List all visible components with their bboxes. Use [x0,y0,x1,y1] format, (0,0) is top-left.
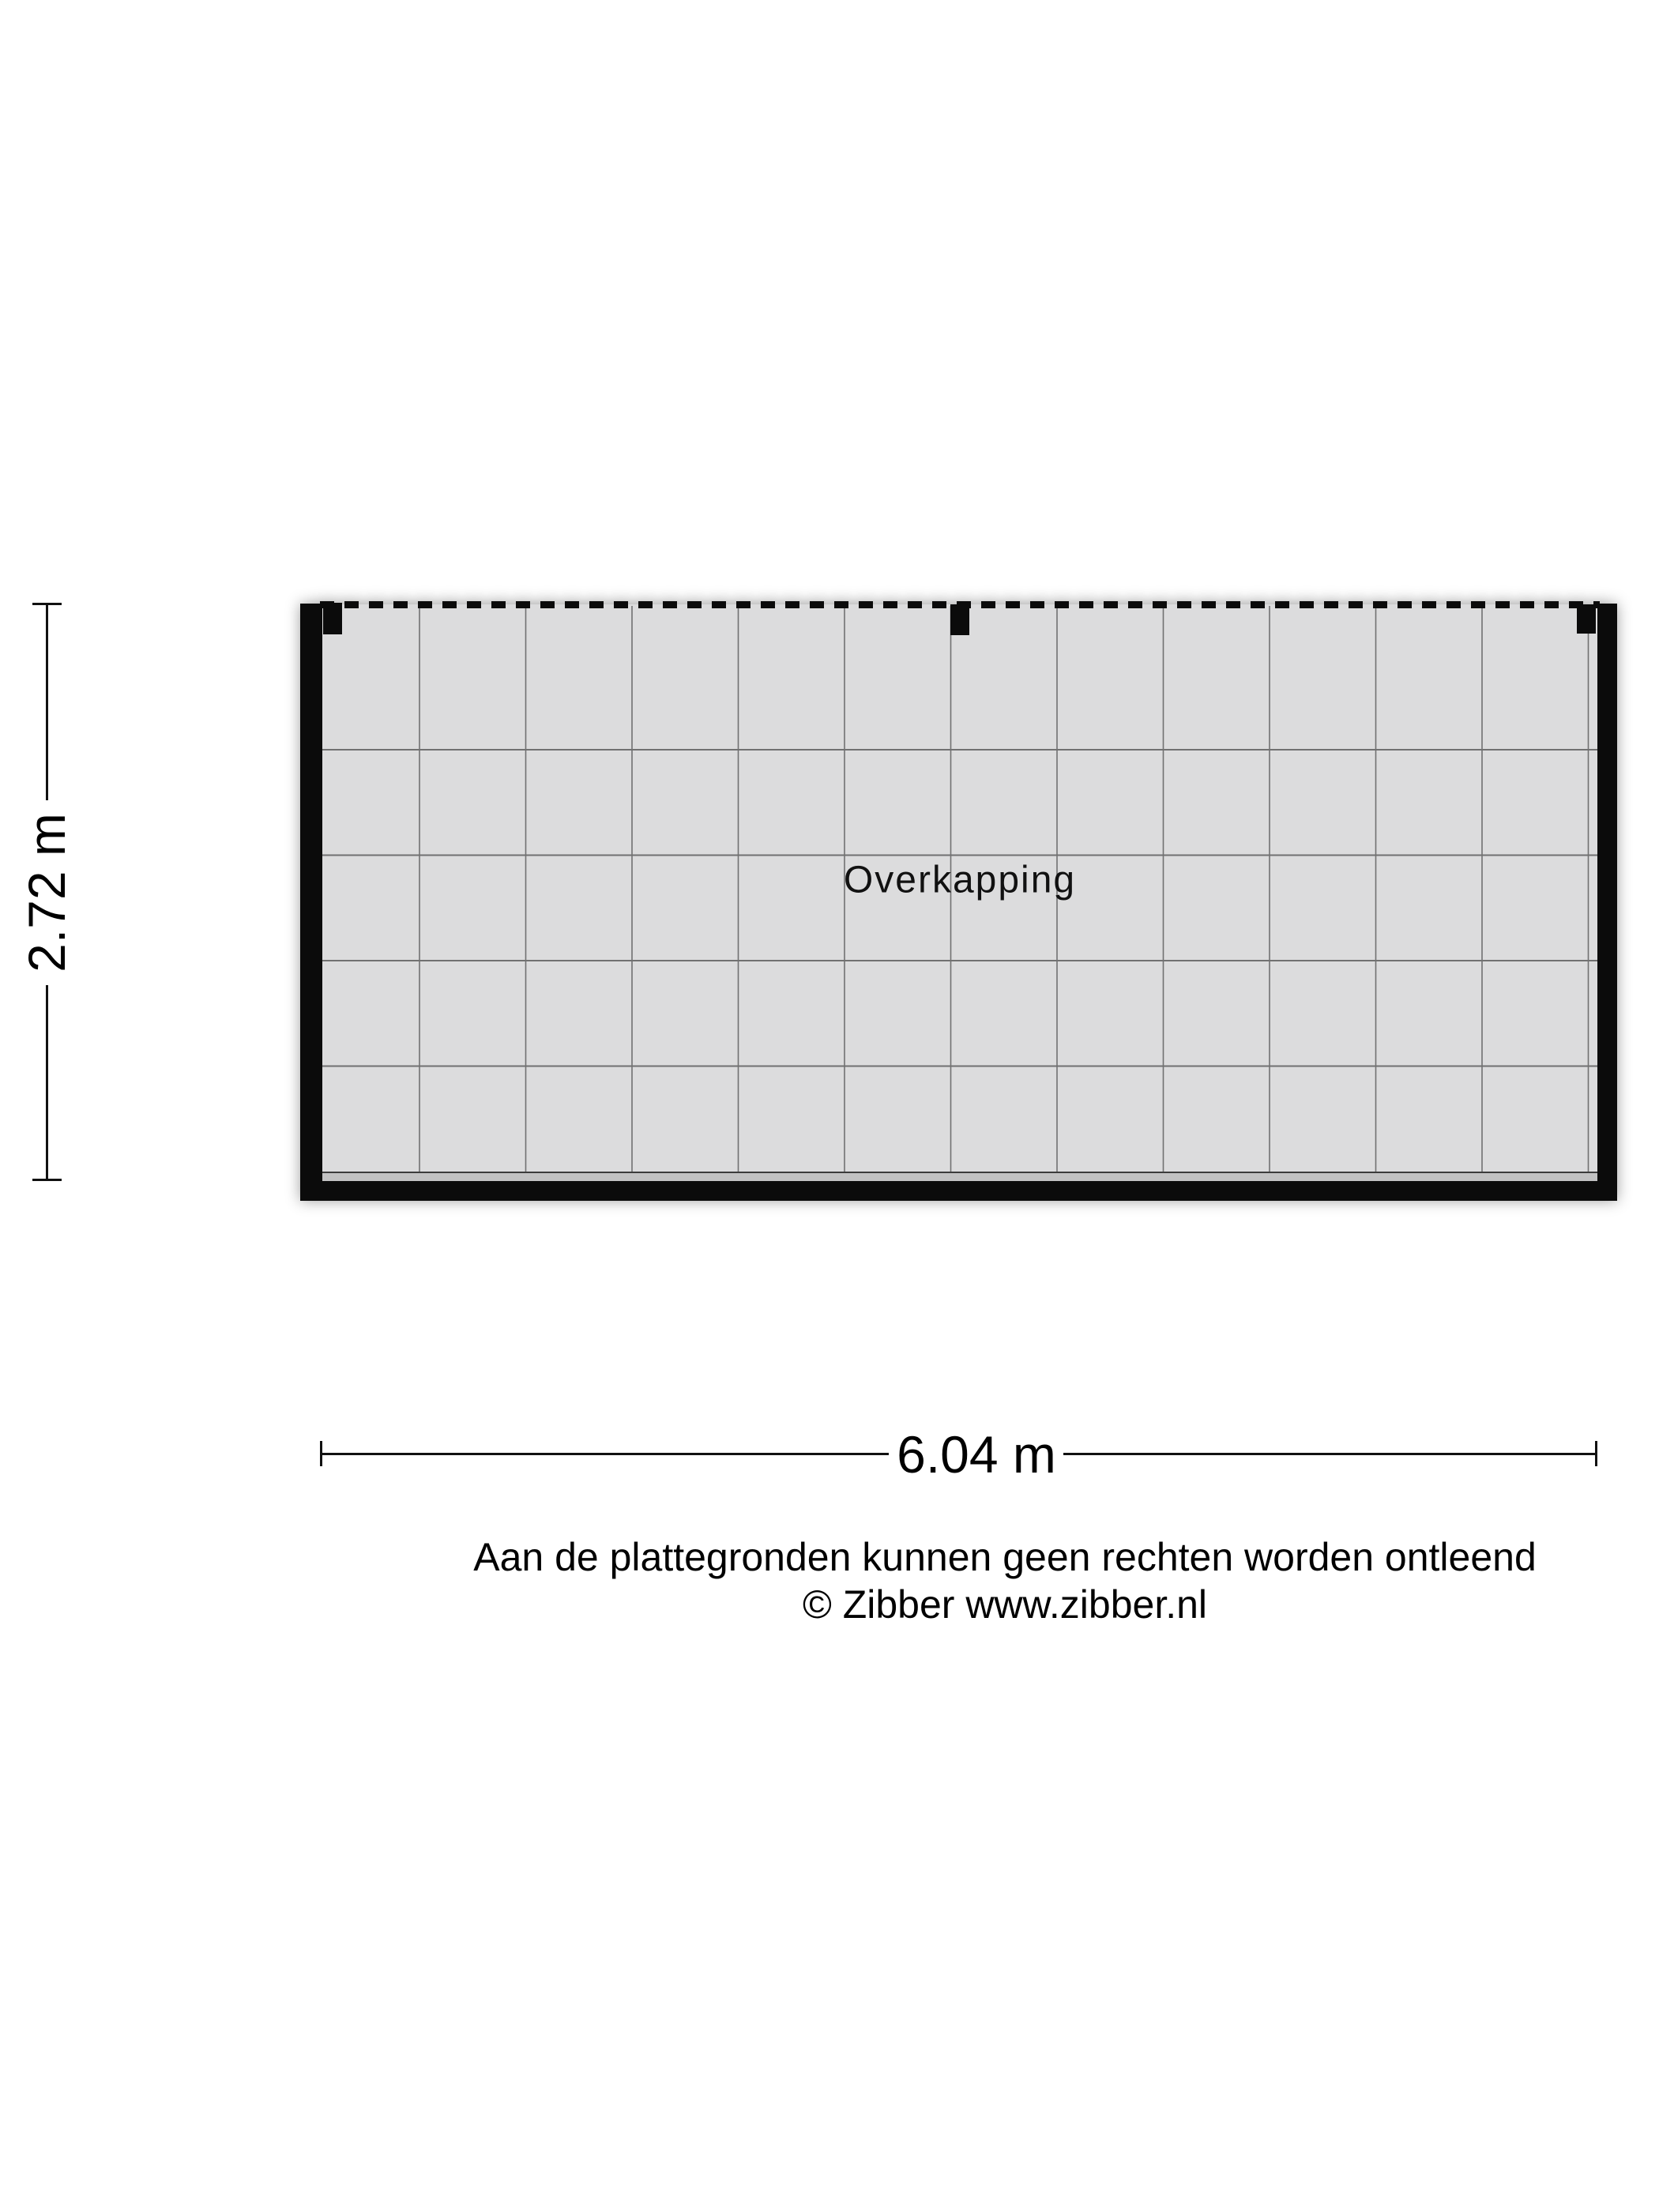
height-dimension-line [46,604,48,800]
height-dimension-end-cap [32,1179,62,1181]
width-dimension-end-cap [320,1441,322,1466]
height-dimension-end-cap [32,603,62,605]
width-dimension-end-cap [1595,1441,1597,1466]
right-wall [1597,604,1617,1201]
width-dimension-line [1063,1453,1597,1455]
floorplan-page: Overkapping 2.72 m 6.04 m Aan de platteg… [0,0,1659,2212]
disclaimer-text: Aan de plattegronden kunnen geen rechten… [473,1533,1537,1581]
height-dimension-line [46,985,48,1181]
post-right [1577,604,1596,634]
copyright-text: © Zibber www.zibber.nl [473,1581,1537,1628]
post-middle [950,604,969,635]
post-left [323,603,342,634]
floor-edge-strip [322,1172,1597,1181]
width-dimension-line [322,1453,889,1455]
left-wall [300,604,322,1201]
room-label: Overkapping [844,859,1076,902]
footer: Aan de plattegronden kunnen geen rechten… [473,1533,1537,1628]
width-dimension-label: 6.04 m [897,1424,1056,1484]
height-dimension-label: 2.72 m [17,813,77,972]
bottom-wall [300,1181,1617,1201]
